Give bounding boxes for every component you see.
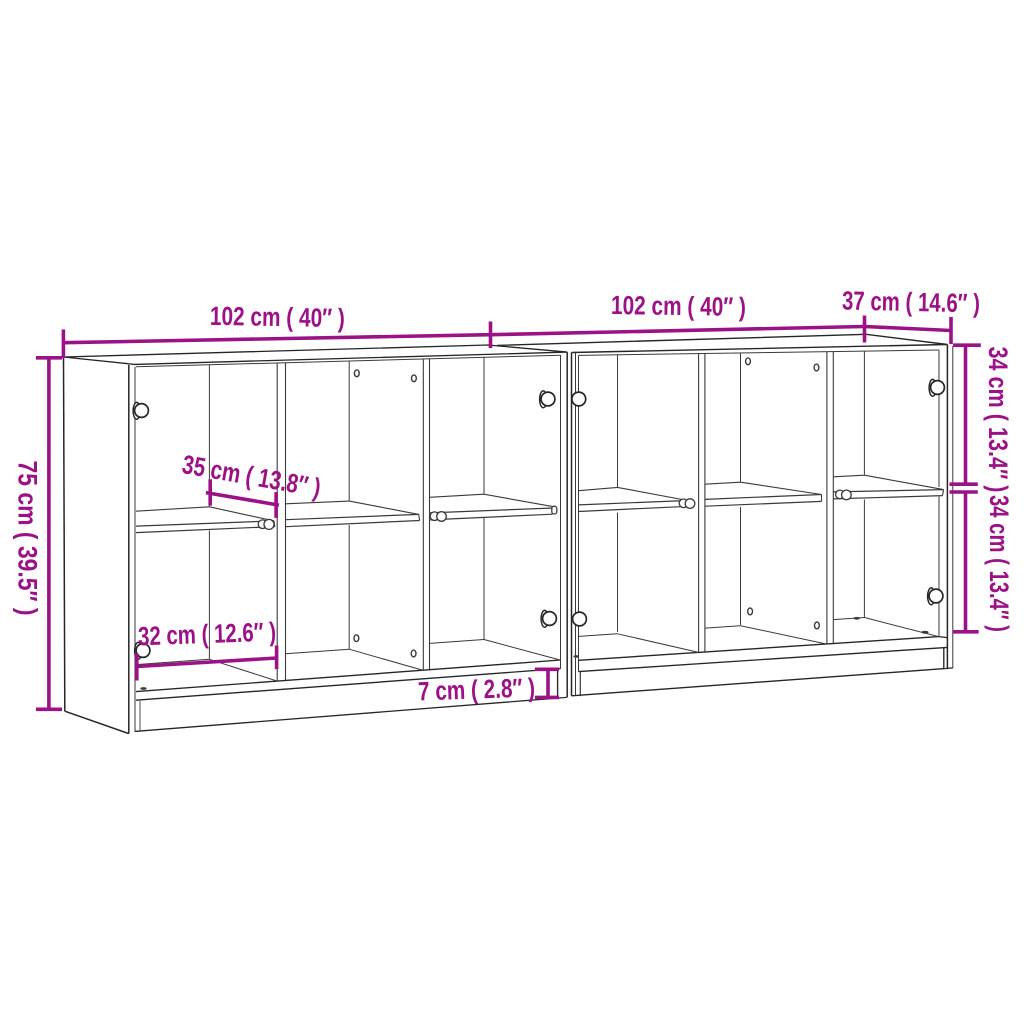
svg-text:7 cm ( 2.8″ ): 7 cm ( 2.8″ ) bbox=[418, 672, 536, 706]
svg-text:32 cm ( 12.6″ ): 32 cm ( 12.6″ ) bbox=[138, 617, 277, 652]
svg-text:37 cm ( 14.6″ ): 37 cm ( 14.6″ ) bbox=[842, 286, 981, 319]
svg-text:75 cm ( 39.5″ ): 75 cm ( 39.5″ ) bbox=[13, 461, 43, 616]
svg-text:102 cm ( 40″ ): 102 cm ( 40″ ) bbox=[210, 301, 346, 333]
svg-text:102 cm ( 40″ ): 102 cm ( 40″ ) bbox=[611, 290, 746, 322]
svg-text:34 cm ( 13.4″ ): 34 cm ( 13.4″ ) bbox=[984, 495, 1014, 632]
svg-text:34 cm ( 13.4″ ): 34 cm ( 13.4″ ) bbox=[983, 347, 1013, 493]
